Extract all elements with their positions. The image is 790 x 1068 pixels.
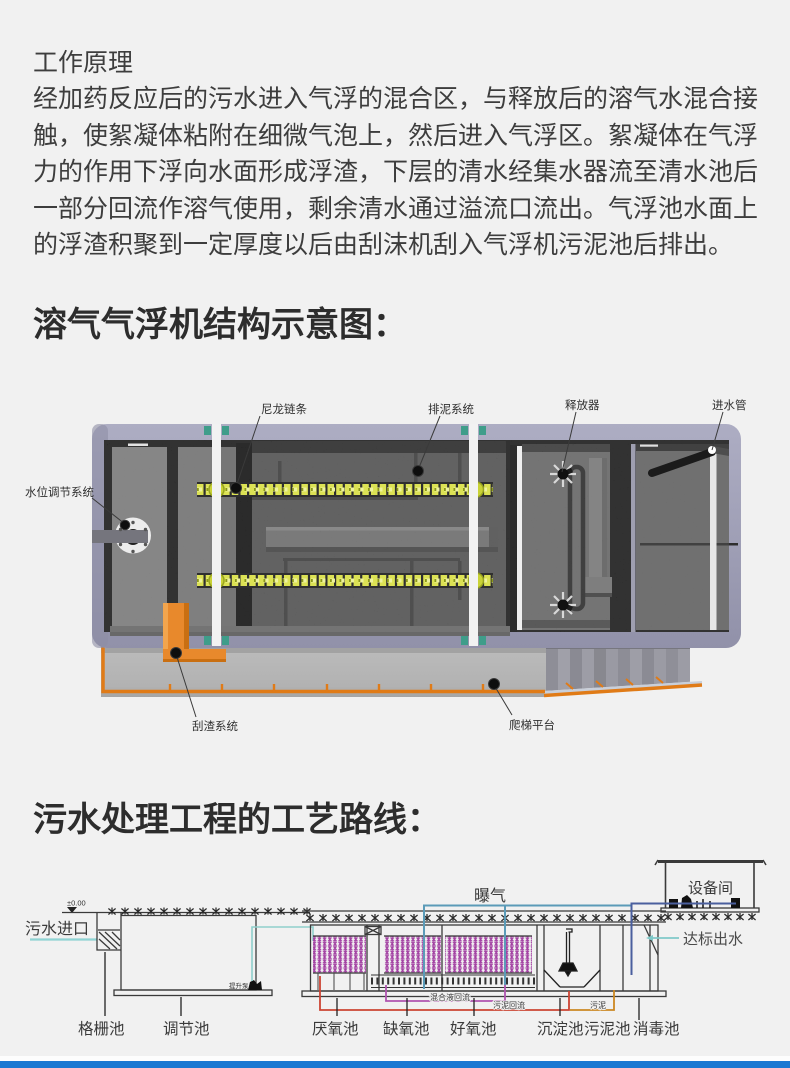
svg-text:污泥: 污泥 <box>590 1000 606 1010</box>
svg-text:±0.00: ±0.00 <box>67 899 86 908</box>
svg-text:污水进口: 污水进口 <box>25 920 89 938</box>
svg-text:厌氧池: 厌氧池 <box>312 1020 359 1038</box>
svg-text:曝气: 曝气 <box>474 887 506 905</box>
svg-text:设备间: 设备间 <box>688 880 733 897</box>
svg-text:水位调节系统: 水位调节系统 <box>25 485 94 499</box>
svg-text:调节池: 调节池 <box>163 1020 210 1038</box>
svg-text:污泥回流: 污泥回流 <box>493 1000 525 1010</box>
svg-text:格栅池: 格栅池 <box>78 1020 125 1038</box>
svg-text:释放器: 释放器 <box>565 398 600 412</box>
svg-text:达标出水: 达标出水 <box>683 931 743 948</box>
svg-text:爬梯平台: 爬梯平台 <box>509 718 555 732</box>
svg-text:缺氧池: 缺氧池 <box>383 1020 430 1038</box>
svg-text:进水管: 进水管 <box>712 398 747 412</box>
svg-text:尼龙链条: 尼龙链条 <box>261 402 307 416</box>
svg-text:污泥池: 污泥池 <box>584 1020 631 1038</box>
svg-text:混合液回流: 混合液回流 <box>430 992 470 1002</box>
svg-text:排泥系统: 排泥系统 <box>428 402 474 416</box>
svg-text:刮渣系统: 刮渣系统 <box>192 719 238 733</box>
svg-text:提升泵: 提升泵 <box>229 981 249 990</box>
svg-text:消毒池: 消毒池 <box>633 1020 680 1038</box>
svg-text:沉淀池: 沉淀池 <box>537 1020 584 1038</box>
svg-text:好氧池: 好氧池 <box>450 1020 497 1038</box>
